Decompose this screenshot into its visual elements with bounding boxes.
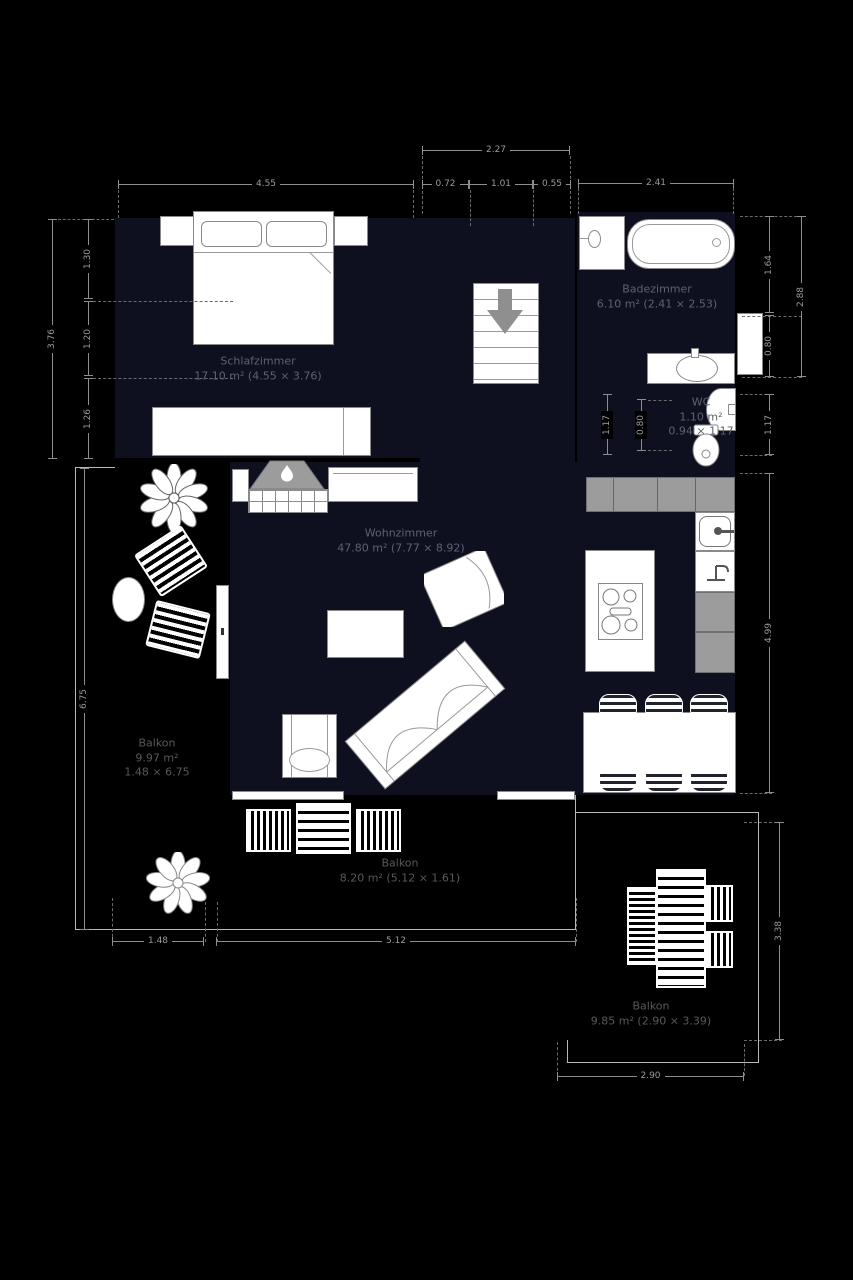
balkon-unten-label: Balkon 8.20 m² (5.12 × 1.61) xyxy=(340,857,460,886)
extension-line xyxy=(576,898,577,942)
dimension-value: 1.01 xyxy=(487,178,515,190)
fireplace-icon xyxy=(249,460,325,490)
counter-divider xyxy=(613,478,614,511)
dimension-value: 2.88 xyxy=(795,282,807,310)
counter-divider xyxy=(695,478,696,511)
dimension-line: 3.76 xyxy=(52,219,53,459)
extension-line xyxy=(733,188,734,214)
sofa xyxy=(335,640,515,790)
extension-line xyxy=(93,301,233,302)
badezimmer-label: Badezimmer 6.10 m² (2.41 × 2.53) xyxy=(597,283,717,312)
plant-icon xyxy=(145,852,211,914)
sideboard-groove xyxy=(333,473,413,474)
dimension-value: 1.26 xyxy=(82,404,94,432)
nightstand xyxy=(334,216,368,246)
balcony-railing xyxy=(75,467,76,930)
armchair-armrest xyxy=(327,715,328,777)
shower-knob xyxy=(588,230,601,248)
dimension-line: 2.27 xyxy=(422,150,570,151)
extension-line xyxy=(413,190,414,218)
dimension-line: 5.12 xyxy=(216,941,576,942)
dimension-line: 2.41 xyxy=(578,183,734,184)
dimension-value: 0.72 xyxy=(431,178,459,190)
dining-chair xyxy=(599,771,637,792)
room-name: Balkon xyxy=(591,1000,711,1015)
armchair-armrest xyxy=(291,715,292,777)
dimension-value: 4.99 xyxy=(763,619,775,647)
round-table xyxy=(112,577,145,622)
dimension-value: 0.55 xyxy=(538,178,566,190)
kitchen-counter xyxy=(695,592,735,632)
dining-chair xyxy=(690,771,728,792)
balcony-railing xyxy=(758,812,759,1063)
fireplace-side-block xyxy=(232,469,249,502)
outdoor-chair xyxy=(246,809,291,852)
dimension-line: 1.17 xyxy=(769,394,770,455)
outdoor-chair xyxy=(356,809,401,852)
balcony-door xyxy=(232,791,344,800)
outdoor-chair xyxy=(145,600,211,659)
bathtub-drain xyxy=(712,238,721,247)
balcony-door-handle xyxy=(221,628,224,635)
dimension-value: 1.17 xyxy=(601,410,613,438)
outdoor-chair xyxy=(134,525,208,597)
dimension-value: 0.80 xyxy=(635,411,647,439)
dimension-line: 3.38 xyxy=(779,822,780,1040)
dimension-line: 1.26 xyxy=(88,378,89,459)
nightstand xyxy=(160,216,194,246)
room-details: 17.10 m² (4.55 × 3.76) xyxy=(194,369,321,384)
outdoor-table xyxy=(296,803,351,854)
armchair-cushion xyxy=(289,748,330,772)
extension-line xyxy=(217,902,218,942)
dimension-line: 4.55 xyxy=(118,184,414,185)
extension-line xyxy=(740,793,772,794)
extension-line xyxy=(557,1042,558,1076)
wc-label: WC 1.10 m² 0.94 × 1.17 xyxy=(668,395,733,439)
dining-chair xyxy=(645,771,683,792)
room-name: WC xyxy=(668,395,733,410)
balkon-rechts-label: Balkon 9.85 m² (2.90 × 3.39) xyxy=(591,1000,711,1029)
balkon-links-label: Balkon 9.97 m² 1.48 × 6.75 xyxy=(124,736,189,780)
schlafzimmer-label: Schlafzimmer 17.10 m² (4.55 × 3.76) xyxy=(194,355,321,384)
extension-line xyxy=(744,1040,782,1041)
dimension-line: 6.75 xyxy=(84,468,85,930)
extension-line xyxy=(740,455,772,456)
dimension-value: 6.75 xyxy=(78,685,90,713)
dresser xyxy=(152,407,371,456)
dimension-line: 1.30 xyxy=(88,219,89,299)
dimension-line: 1.17 xyxy=(607,394,608,455)
room-details: 9.85 m² (2.90 × 3.39) xyxy=(591,1014,711,1029)
dimension-line: 0.55 xyxy=(533,184,571,185)
outdoor-table xyxy=(656,869,706,988)
dimension-value: 0.80 xyxy=(763,332,775,360)
dimension-value: 2.41 xyxy=(642,177,670,189)
room-size: 0.94 × 1.17 xyxy=(668,424,733,439)
outdoor-chair xyxy=(706,885,733,922)
room-area: 9.97 m² xyxy=(124,751,189,766)
stairs-down-arrow-icon xyxy=(487,289,523,335)
kitchen-counter xyxy=(586,477,735,512)
extension-line xyxy=(112,898,113,942)
balcony-railing xyxy=(75,929,576,930)
room-name: Schlafzimmer xyxy=(194,355,321,370)
balcony-railing xyxy=(567,1062,759,1063)
dimension-value: 5.12 xyxy=(382,935,410,947)
dimension-line: 1.01 xyxy=(469,184,533,185)
extension-line xyxy=(578,188,579,214)
kitchen-faucet-stem xyxy=(721,530,734,533)
balcony-railing xyxy=(567,1040,568,1063)
dresser-divider xyxy=(343,408,344,455)
armchair xyxy=(424,551,504,627)
pillow xyxy=(266,221,327,247)
entry-door xyxy=(737,313,763,375)
bathroom-sink-tap xyxy=(691,348,699,358)
extension-line xyxy=(470,190,471,226)
dining-chair xyxy=(599,694,637,715)
extension-line xyxy=(744,1044,745,1076)
dimension-line: 1.64 xyxy=(769,216,770,313)
shower xyxy=(579,216,625,270)
extension-line xyxy=(742,377,802,378)
dining-chair xyxy=(645,694,683,715)
balcony-door xyxy=(497,791,575,800)
bathroom-sink xyxy=(676,355,718,382)
cooktop-icon xyxy=(598,583,643,640)
room-name: Balkon xyxy=(340,857,460,872)
room-details: 6.10 m² (2.41 × 2.53) xyxy=(597,297,717,312)
dimension-line: 2.88 xyxy=(801,216,802,377)
fireplace-hearth-tiles xyxy=(248,489,328,513)
dimension-value: 4.55 xyxy=(252,178,280,190)
dimension-value: 1.48 xyxy=(144,935,172,947)
dimension-value: 1.64 xyxy=(763,250,775,278)
extension-line xyxy=(648,450,672,451)
counter-divider xyxy=(657,478,658,511)
room-area: 1.10 m² xyxy=(668,410,733,425)
dimension-line: 2.90 xyxy=(557,1076,744,1077)
dining-chair xyxy=(690,694,728,715)
dimension-line: 0.80 xyxy=(769,315,770,377)
dimension-value: 3.38 xyxy=(773,917,785,945)
dimension-value: 2.27 xyxy=(482,144,510,156)
room-name: Balkon xyxy=(124,736,189,751)
tap-icon xyxy=(695,551,735,592)
dimension-value: 3.76 xyxy=(46,325,58,353)
room-details: 47.80 m² (7.77 × 8.92) xyxy=(337,541,464,556)
room-details: 8.20 m² (5.12 × 1.61) xyxy=(340,871,460,886)
dimension-value: 1.17 xyxy=(763,410,775,438)
extension-line xyxy=(533,190,534,226)
floor-plan: Schlafzimmer 17.10 m² (4.55 × 3.76) Bade… xyxy=(0,0,853,1280)
dimension-line: 1.48 xyxy=(112,941,204,942)
kitchen-counter xyxy=(695,632,735,673)
blanket-edge xyxy=(194,252,333,253)
dimension-value: 1.30 xyxy=(82,245,94,273)
outdoor-chair xyxy=(706,931,733,968)
dimension-value: 2.90 xyxy=(636,1070,664,1082)
extension-line xyxy=(742,316,802,317)
balcony-railing xyxy=(575,812,758,813)
outdoor-chair xyxy=(627,887,657,965)
extension-line xyxy=(205,902,206,942)
dimension-value: 1.20 xyxy=(82,324,94,352)
pillow xyxy=(201,221,262,247)
dimension-line: 1.20 xyxy=(88,301,89,376)
room-size: 1.48 × 6.75 xyxy=(124,765,189,780)
room-name: Wohnzimmer xyxy=(337,527,464,542)
dimension-line: 0.72 xyxy=(422,184,469,185)
extension-line xyxy=(118,190,119,218)
wohnzimmer-label: Wohnzimmer 47.80 m² (7.77 × 8.92) xyxy=(337,527,464,556)
dimension-line: 4.99 xyxy=(769,473,770,793)
plant-icon xyxy=(140,464,208,532)
room-name: Badezimmer xyxy=(597,283,717,298)
dimension-line: 0.80 xyxy=(641,399,642,451)
